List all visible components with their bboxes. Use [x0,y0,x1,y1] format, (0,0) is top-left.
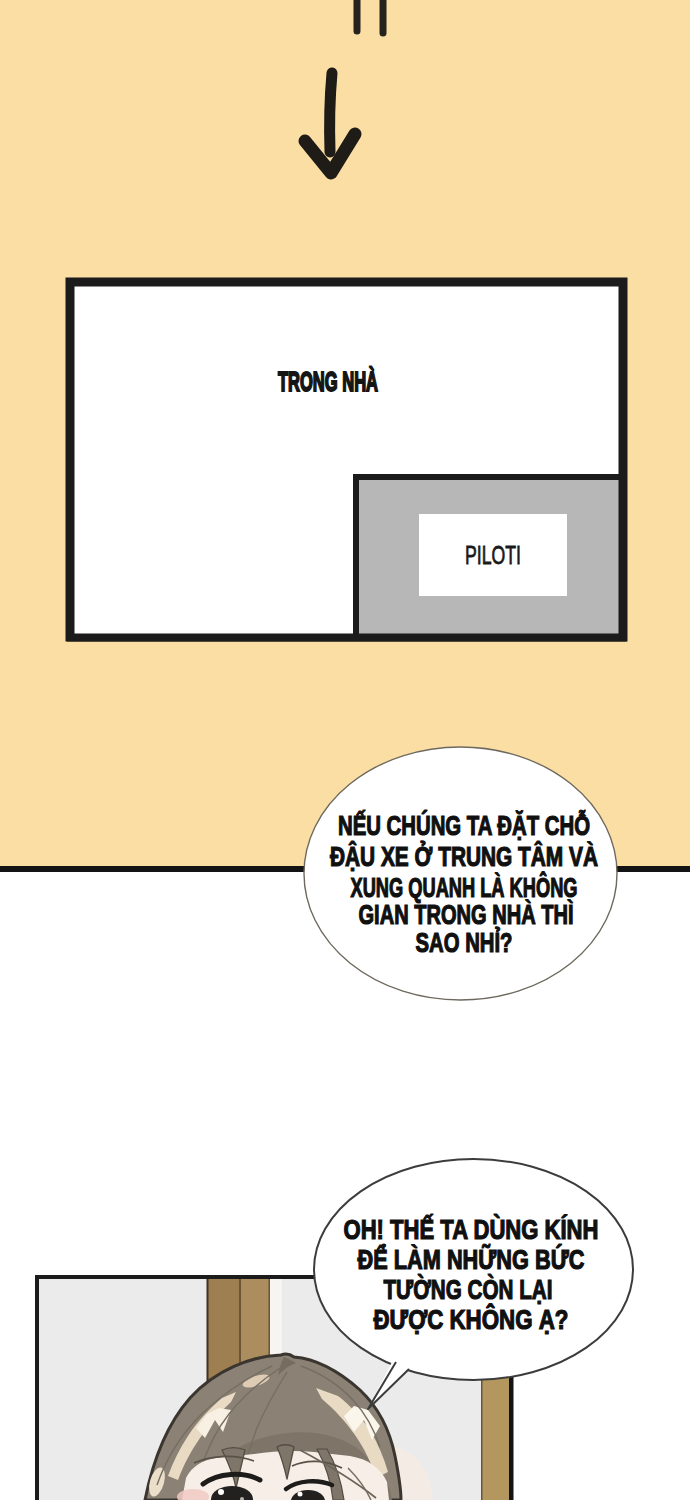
svg-text:SAO NHỈ?: SAO NHỈ? [416,926,513,958]
svg-text:OH! THẾ TA DÙNG KÍNH: OH! THẾ TA DÙNG KÍNH [344,1214,599,1245]
svg-text:PILOTI: PILOTI [465,540,521,570]
svg-text:ĐƯỢC KHÔNG Ạ?: ĐƯỢC KHÔNG Ạ? [374,1303,569,1335]
svg-text:ĐỂ LÀM NHỮNG BỨC: ĐỂ LÀM NHỮNG BỨC [358,1244,585,1275]
svg-text:NẾU CHÚNG TA ĐẶT CHỖ: NẾU CHÚNG TA ĐẶT CHỖ [338,810,590,841]
svg-text:TƯỜNG CÒN LẠI: TƯỜNG CÒN LẠI [384,1274,553,1305]
svg-text:TRONG NHÀ: TRONG NHÀ [278,366,378,397]
svg-text:GIAN TRONG NHÀ THÌ: GIAN TRONG NHÀ THÌ [359,899,574,930]
svg-text:ĐẬU XE Ở TRUNG TÂM VÀ: ĐẬU XE Ở TRUNG TÂM VÀ [330,840,598,872]
